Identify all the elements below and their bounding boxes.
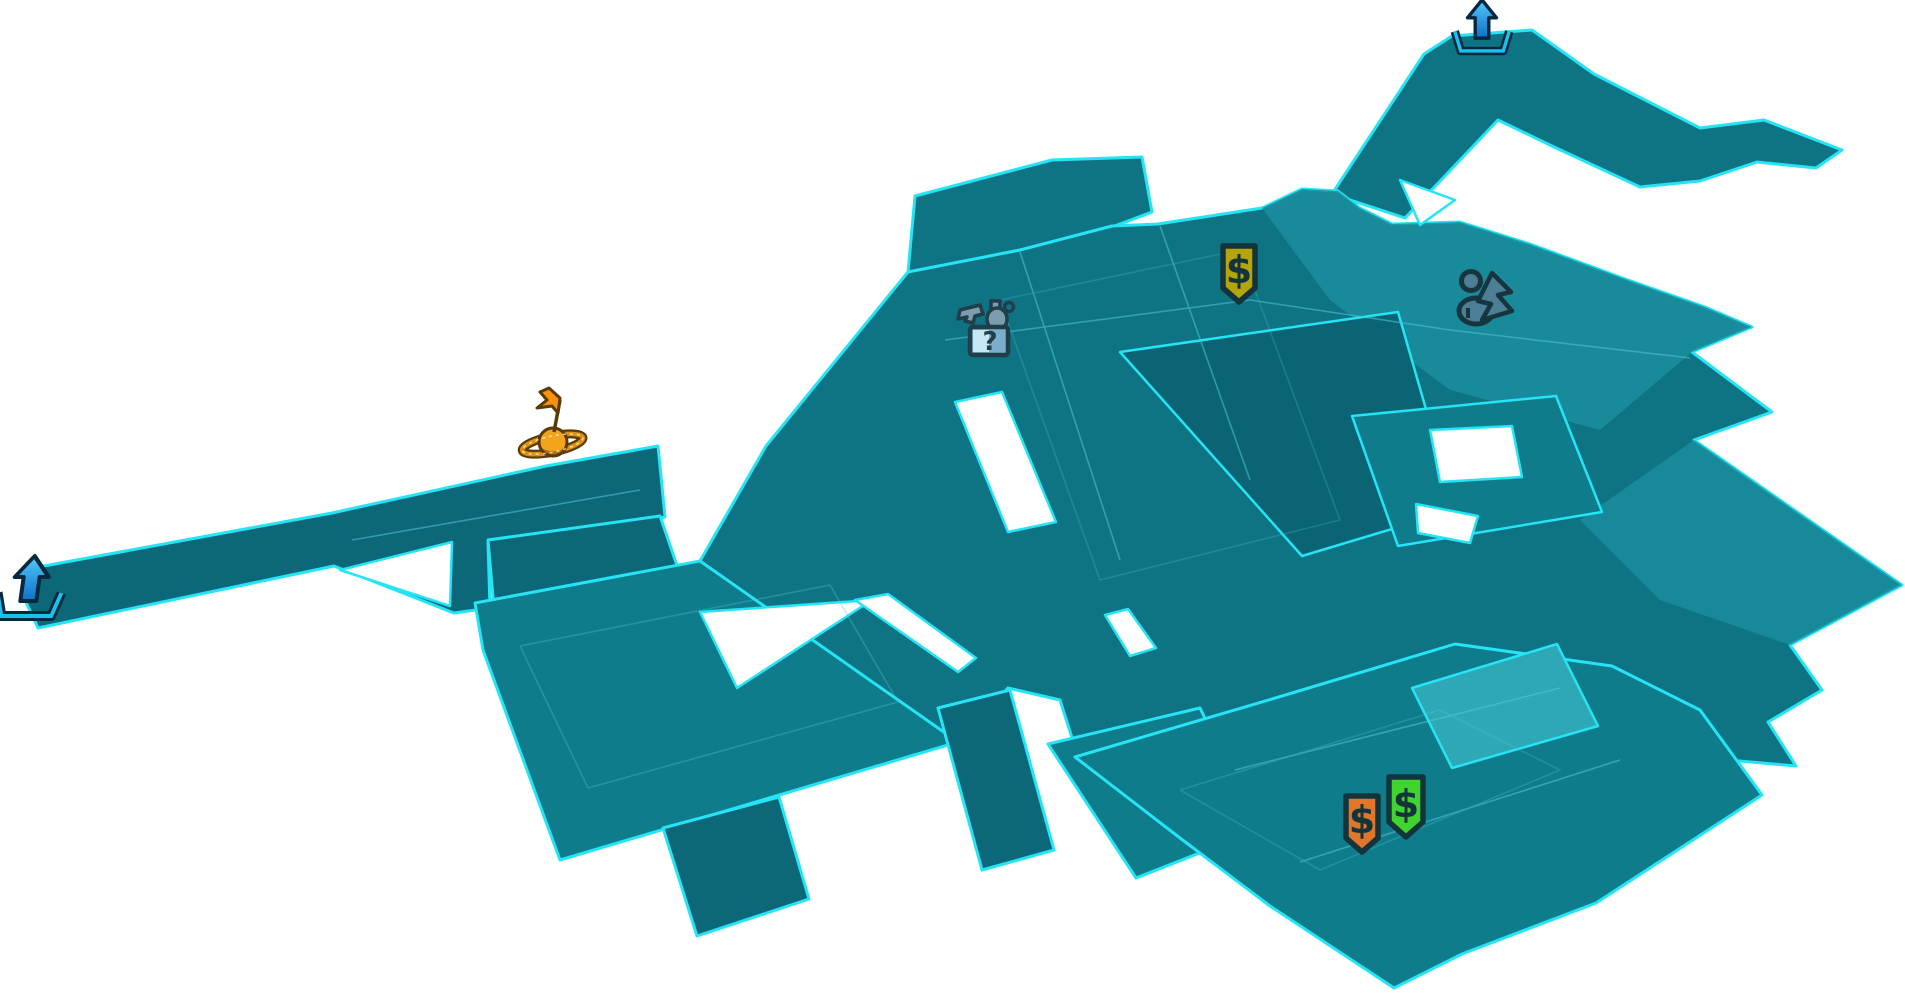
waypoint-flag-icon	[537, 388, 560, 413]
map-canvas: $ $ $ ?	[0, 0, 1905, 993]
waypoint-marker-icon[interactable]	[521, 388, 585, 458]
vendor-icon-orange[interactable]: $	[1346, 796, 1378, 852]
vendor-dollar-label: $	[1393, 782, 1419, 826]
vendor-icon-yellow[interactable]: $	[1223, 246, 1255, 302]
vendor-dollar-label: $	[1226, 248, 1252, 292]
box-question-label: ?	[982, 327, 997, 357]
vendor-icon-green[interactable]: $	[1389, 777, 1423, 837]
game-map-screen: $ $ $ ?	[0, 0, 1905, 993]
vendor-dollar-label: $	[1349, 798, 1375, 842]
gap-courtyard-hole	[1430, 426, 1522, 482]
platform-hanging-strip-b	[938, 690, 1054, 870]
terrain-platforms	[24, 30, 1902, 988]
fast-travel-head	[1462, 272, 1481, 291]
